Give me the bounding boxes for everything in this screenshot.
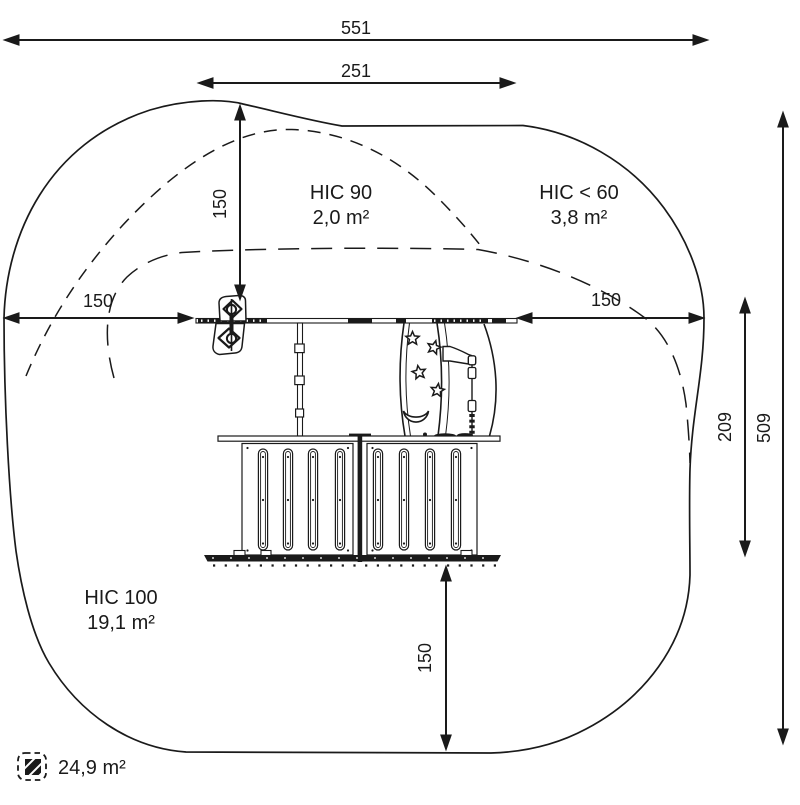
zone-labels: HIC 90 2,0 m² HIC < 60 3,8 m² HIC 100 19… — [84, 182, 618, 634]
dim-platform-width-label: 251 — [341, 61, 371, 81]
dim-left-clearance: 150 — [4, 291, 193, 323]
dim-platform-width: 251 — [198, 61, 515, 88]
hic90-zone-label: HIC 90 — [310, 182, 372, 204]
playground-safety-zone-diagram: 551 251 150 150 150 — [0, 0, 800, 800]
hic60-dashed-boundary — [107, 248, 690, 463]
play-equipment — [196, 296, 517, 566]
hic100-zone-area: 19,1 m² — [87, 612, 155, 634]
dim-total-height-label: 509 — [754, 413, 774, 443]
dimension-annotations: 551 251 150 150 150 — [4, 18, 788, 750]
star-climbing-panel — [400, 323, 496, 436]
hic60-zone-label: HIC < 60 — [539, 182, 618, 204]
dim-total-width-label: 551 — [341, 18, 371, 38]
dim-total-height: 509 — [754, 112, 788, 744]
dim-right-clearance: 150 — [517, 290, 704, 323]
dim-bottom-clearance-label: 150 — [415, 643, 435, 673]
safety-zone-drawing-page: 551 251 150 150 150 — [0, 0, 800, 800]
dim-right-clearance-label: 150 — [591, 290, 621, 310]
dim-total-width: 551 — [4, 18, 708, 45]
dim-left-clearance-label: 150 — [83, 291, 113, 311]
dim-equipment-height: 209 — [715, 298, 750, 556]
dim-bottom-clearance: 150 — [415, 566, 451, 750]
footprint-legend: 24,9 m² — [18, 753, 126, 782]
slatted-base-unit — [204, 434, 501, 566]
hic60-zone-area: 3,8 m² — [551, 207, 608, 229]
support-post — [295, 323, 304, 436]
dim-top-clearance-label: 150 — [210, 189, 230, 219]
play-panel-icon — [213, 296, 246, 355]
footprint-area-label: 24,9 m² — [58, 757, 126, 779]
dim-equipment-height-label: 209 — [715, 412, 735, 442]
hic100-zone-label: HIC 100 — [84, 587, 157, 609]
dim-top-clearance: 150 — [210, 105, 245, 300]
hic90-zone-area: 2,0 m² — [313, 207, 370, 229]
footprint-area-icon — [18, 753, 48, 782]
